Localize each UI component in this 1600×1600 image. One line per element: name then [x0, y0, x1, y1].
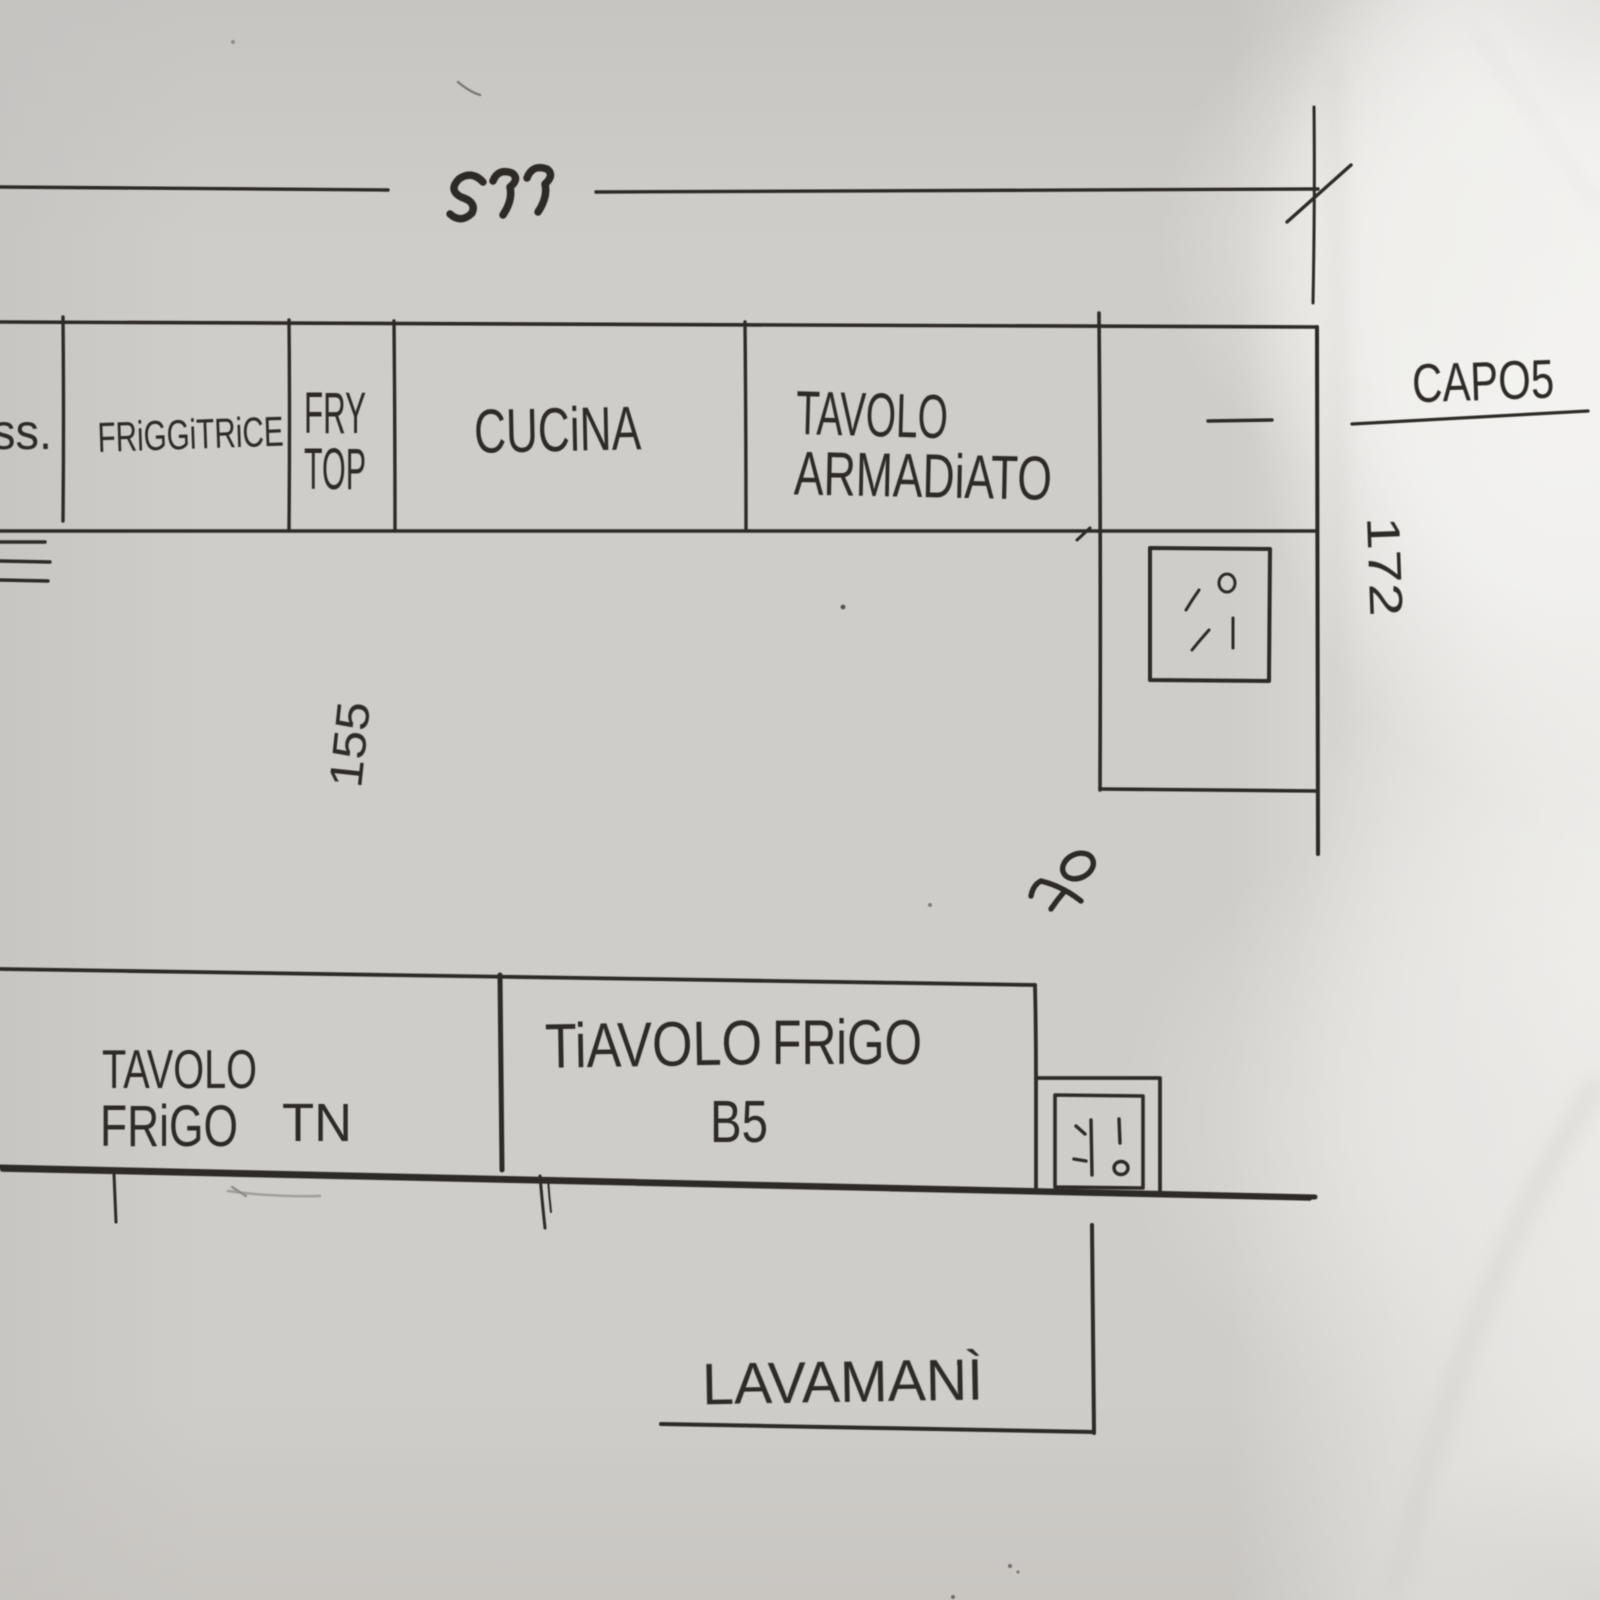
svg-text:TAVOLO: TAVOLO: [102, 1038, 257, 1100]
svg-text:TN: TN: [282, 1093, 352, 1153]
svg-text:172: 172: [1357, 516, 1412, 618]
svg-text:TOP: TOP: [304, 437, 366, 502]
svg-text:LAVAMANÌ: LAVAMANÌ: [701, 1348, 983, 1418]
svg-text:155: 155: [319, 699, 380, 790]
svg-text:TiAVOLO: TiAVOLO: [544, 1008, 762, 1082]
svg-text:CAPO5: CAPO5: [1411, 347, 1555, 414]
svg-text:ARMADiATO: ARMADiATO: [793, 439, 1052, 513]
svg-text:CUCiNA: CUCiNA: [473, 394, 642, 466]
svg-text:FRiGO: FRiGO: [772, 1008, 922, 1078]
svg-text:B5: B5: [710, 1089, 768, 1155]
svg-text:FRiGGiTRiCE: FRiGGiTRiCE: [97, 408, 285, 461]
svg-text:FRiGO: FRiGO: [100, 1094, 238, 1159]
svg-text:ss.: ss.: [0, 404, 52, 460]
